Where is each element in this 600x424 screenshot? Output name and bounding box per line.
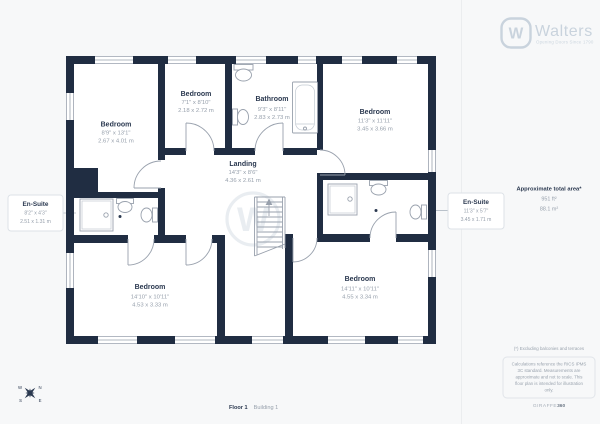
room-dims-imperial: 9'3" x 8'11"	[258, 107, 287, 113]
area-title: Approximate total area*	[516, 187, 582, 193]
room-dims-imperial: 7'1" x 8'10"	[181, 100, 210, 106]
window	[98, 336, 137, 344]
window	[175, 336, 215, 344]
ensuite-left-callout: En-Suite 8'2" x 4'3" 2.51 x 1.31 m	[8, 195, 63, 231]
window	[252, 336, 283, 344]
room-dims-metric: 2.83 x 2.73 m	[254, 115, 290, 121]
ensuite-left-shower	[80, 199, 113, 231]
disclaimer-line: only.	[545, 388, 554, 393]
window	[168, 56, 196, 64]
room-dims-metric: 4.55 x 3.34 m	[342, 295, 378, 301]
ensuite-left-sink	[117, 199, 134, 213]
compass-rose: W N S E	[18, 385, 42, 403]
room-label-bedroom-bottom-left: Bedroom 14'10" x 10'11" 4.53 x 3.33 m	[131, 284, 169, 309]
brand-logo: W Walters Opening Doors Since 1790	[502, 19, 594, 48]
window	[66, 253, 74, 288]
room-name: Landing	[229, 161, 256, 168]
provider-name: GIRAFFE	[533, 403, 557, 409]
compass-north: N	[38, 385, 41, 390]
disclaimer-line: floor plan is intended for illustration	[515, 381, 583, 386]
room-dims-imperial: 14'3" x 8'6"	[228, 170, 257, 176]
window	[236, 56, 266, 64]
room-label-bedroom-top-small: Bedroom 7'1" x 8'10" 2.18 x 2.72 m	[178, 91, 214, 114]
area-imperial: 951 ft²	[541, 197, 556, 203]
ensuite-right-toilet	[410, 205, 427, 219]
ensuite-dims-imperial: 11'3" x 5'7"	[464, 209, 489, 215]
room-name: Bedroom	[360, 109, 391, 116]
ensuite-left-dot	[119, 215, 122, 218]
window	[95, 56, 133, 64]
ensuite-dims-imperial: 8'2" x 4'3"	[24, 211, 46, 217]
room-dims-metric: 4.36 x 2.61 m	[225, 178, 261, 184]
room-name: Bathroom	[255, 96, 288, 103]
area-metric: 88.1 m²	[540, 207, 558, 213]
room-dims-imperial: 8'9" x 13'1"	[101, 131, 130, 137]
room-dims-metric: 2.67 x 4.01 m	[98, 139, 134, 145]
floorplan-canvas: W	[0, 0, 600, 424]
provider-suffix: 360	[557, 403, 565, 409]
ensuite-dims-metric: 3.45 x 1.71 m	[461, 217, 492, 223]
room-label-bedroom-top-left: Bedroom 8'9" x 13'1" 2.67 x 4.01 m	[98, 122, 134, 145]
window	[397, 56, 417, 64]
floorplan-page: W	[0, 0, 600, 424]
disclaimer-line: 3C standard. Measurements are	[518, 368, 582, 373]
window	[342, 56, 362, 64]
room-dims-imperial: 11'3" x 11'11"	[358, 119, 392, 125]
room-label-bedroom-bottom-right: Bedroom 14'11" x 10'11" 4.55 x 3.34 m	[341, 276, 379, 301]
room-dims-metric: 2.18 x 2.72 m	[178, 108, 214, 114]
brand-name: Walters	[535, 23, 593, 40]
window	[328, 336, 365, 344]
compass-south: S	[19, 398, 22, 403]
room-label-bathroom: Bathroom 9'3" x 8'11" 2.83 x 2.73 m	[254, 96, 290, 121]
disclaimer-line: Calculations reference the RICS IPMS	[512, 362, 587, 367]
disclaimer-line: approximate and not to scale. This	[515, 375, 583, 380]
window	[428, 250, 436, 277]
room-label-bedroom-top-right: Bedroom 11'3" x 11'11" 3.45 x 3.66 m	[357, 109, 393, 133]
ensuite-right-shower	[328, 184, 357, 215]
compass-east: E	[39, 398, 42, 403]
ensuite-right-callout: En-Suite 11'3" x 5'7" 3.45 x 1.71 m	[448, 193, 504, 229]
ensuite-name: En-Suite	[463, 199, 489, 206]
ensuite-right-sink	[370, 181, 388, 196]
room-name: Bedroom	[181, 91, 212, 98]
window	[398, 336, 423, 344]
bathroom-toilet	[233, 109, 249, 125]
room-name: Bedroom	[345, 276, 376, 283]
room-name: Bedroom	[101, 122, 132, 129]
ensuite-right-dot	[375, 209, 378, 212]
window	[66, 93, 74, 120]
room-dims-imperial: 14'10" x 10'11"	[131, 295, 169, 301]
floor-label: Floor 1	[229, 405, 248, 411]
area-summary: Approximate total area* 951 ft² 88.1 m²	[516, 187, 582, 213]
bathroom-sink	[234, 65, 253, 82]
ensuite-left-toilet	[141, 208, 158, 222]
window	[428, 150, 436, 172]
room-label-landing: Landing 14'3" x 8'6" 4.36 x 2.61 m	[225, 161, 261, 184]
provider-logo: GIRAFFE360	[533, 403, 566, 409]
building-label: Building 1	[254, 405, 279, 411]
room-name: Bedroom	[135, 284, 166, 291]
brand-monogram: W	[509, 26, 524, 43]
window	[298, 56, 316, 64]
bathtub	[293, 82, 318, 133]
floor-indicator: Floor 1Building 1	[229, 405, 278, 411]
room-dims-imperial: 14'11" x 10'11"	[341, 287, 379, 293]
ensuite-name: En-Suite	[23, 201, 49, 208]
brand-tagline: Opening Doors Since 1790	[536, 40, 594, 45]
disclaimer-box: Calculations reference the RICS IPMS 3C …	[503, 357, 595, 398]
footnote: (*) Excluding balconies and terraces	[514, 346, 585, 351]
room-dims-metric: 3.45 x 3.66 m	[357, 127, 393, 133]
ensuite-dims-metric: 2.51 x 1.31 m	[20, 219, 51, 225]
room-dims-metric: 4.53 x 3.33 m	[132, 303, 168, 309]
compass-west: W	[18, 385, 23, 390]
